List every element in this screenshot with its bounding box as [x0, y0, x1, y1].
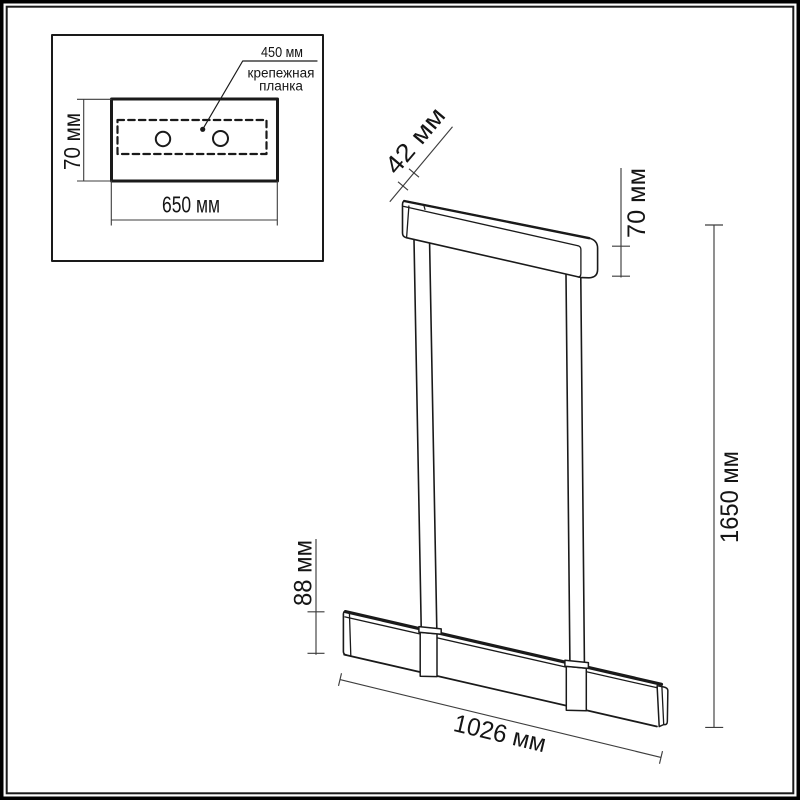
- pendant-fixture-drawing: [343, 201, 667, 727]
- canopy-end-face-edge: [578, 246, 581, 277]
- light-bar-left-cap-edge: [349, 612, 350, 655]
- rod-edge: [430, 243, 437, 629]
- dimension-tick: [398, 182, 408, 190]
- light-bar-front-top-edge: [345, 617, 657, 688]
- canopy-top-edge: [404, 201, 589, 238]
- rod-edge: [581, 278, 585, 662]
- light-bar: [343, 611, 667, 726]
- light-bar-top-edge: [345, 612, 661, 685]
- connector-body: [420, 632, 437, 676]
- canopy-left-cap-edge: [407, 206, 409, 238]
- hole-spacing-label: 450 мм: [261, 44, 303, 61]
- technical-drawing-page: 450 мм крепежная планка 70 мм 650 мм: [0, 0, 800, 800]
- dim-canopy-height: 70 мм: [612, 168, 651, 278]
- canopy-front-top-edge: [404, 206, 578, 245]
- dimension-tick: [409, 169, 419, 177]
- rod-edge: [566, 275, 570, 661]
- dim-bar-height: 88 мм: [290, 539, 325, 655]
- overall-height-label: 1650 мм: [716, 451, 744, 543]
- plate-label-line2: планка: [259, 79, 303, 94]
- plate-width-label: 650 мм: [162, 192, 220, 218]
- rod-connector-right: [565, 660, 589, 711]
- connector-body: [566, 666, 586, 711]
- fixture-dimension-diagram: 450 мм крепежная планка 70 мм 650 мм: [0, 0, 800, 800]
- light-bar-bottom-edge: [344, 655, 657, 727]
- bar-height-label: 88 мм: [290, 540, 318, 606]
- rod-edge: [414, 240, 421, 628]
- dim-overall-height: 1650 мм: [705, 225, 744, 727]
- dim-canopy-depth: 42 мм: [380, 102, 453, 202]
- plate-height-label: 70 мм: [59, 113, 85, 170]
- light-bar-end-cap-edge: [662, 685, 664, 725]
- suspension-rod-right: [566, 275, 584, 662]
- dim-bar-length: 1026 мм: [339, 673, 663, 763]
- connector-cap: [419, 627, 441, 635]
- dimension-annotations: 42 мм 70 мм 1650 мм 88 мм 10: [290, 102, 745, 764]
- canopy-height-label: 70 мм: [623, 168, 651, 238]
- suspension-rod-left: [414, 240, 437, 629]
- bar-length-label: 1026 мм: [451, 709, 549, 758]
- fixture-canopy: [403, 201, 598, 278]
- light-bar-left-cap: [343, 611, 346, 655]
- rod-connector-left: [419, 627, 441, 677]
